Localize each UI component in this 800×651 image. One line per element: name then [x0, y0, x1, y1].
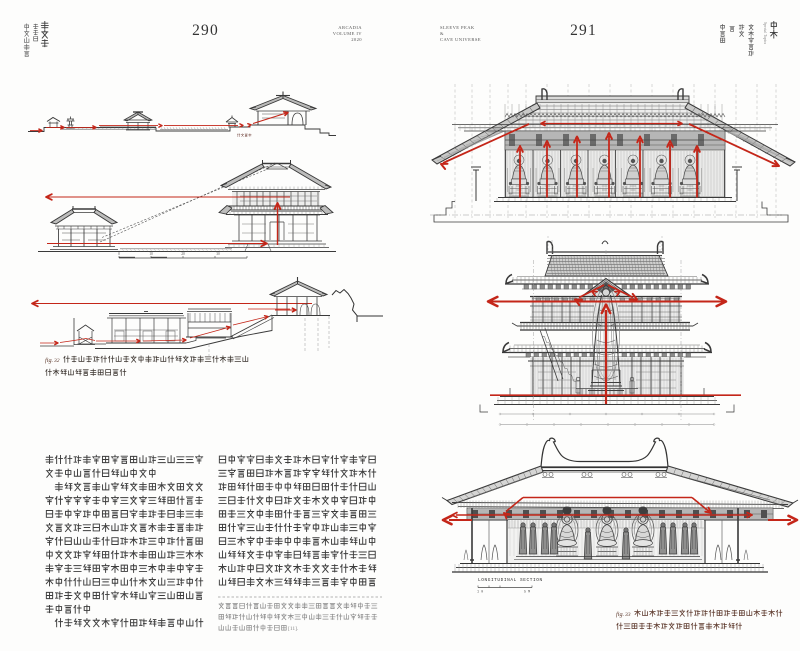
svg-text:Special Topics: Special Topics [763, 22, 767, 45]
svg-text:fig.: fig. [45, 357, 53, 364]
svg-text:fig.: fig. [616, 611, 624, 618]
svg-text:CAVE UNIVERSE: CAVE UNIVERSE [440, 37, 481, 42]
svg-text:33: 33 [624, 612, 631, 618]
svg-text:30: 30 [216, 252, 220, 256]
svg-text:ARCADIA: ARCADIA [338, 25, 362, 30]
svg-text:2020: 2020 [351, 37, 362, 42]
svg-text:291: 291 [570, 22, 597, 39]
svg-text:0: 0 [118, 252, 120, 256]
svg-text:32: 32 [53, 358, 60, 364]
svg-text:290: 290 [192, 22, 219, 39]
svg-text:5 M: 5 M [524, 591, 530, 595]
svg-text:VOLUME IV: VOLUME IV [333, 31, 363, 36]
svg-text:1 0: 1 0 [477, 591, 483, 595]
svg-text:SLEEVE PEAK: SLEEVE PEAK [440, 25, 475, 30]
svg-text:20: 20 [181, 252, 185, 256]
svg-text:&: & [440, 31, 444, 36]
svg-text:LONGITUDINAL SECTION: LONGITUDINAL SECTION [478, 578, 543, 583]
svg-text:[11].: [11]. [288, 626, 299, 632]
svg-text:10: 10 [149, 252, 153, 256]
